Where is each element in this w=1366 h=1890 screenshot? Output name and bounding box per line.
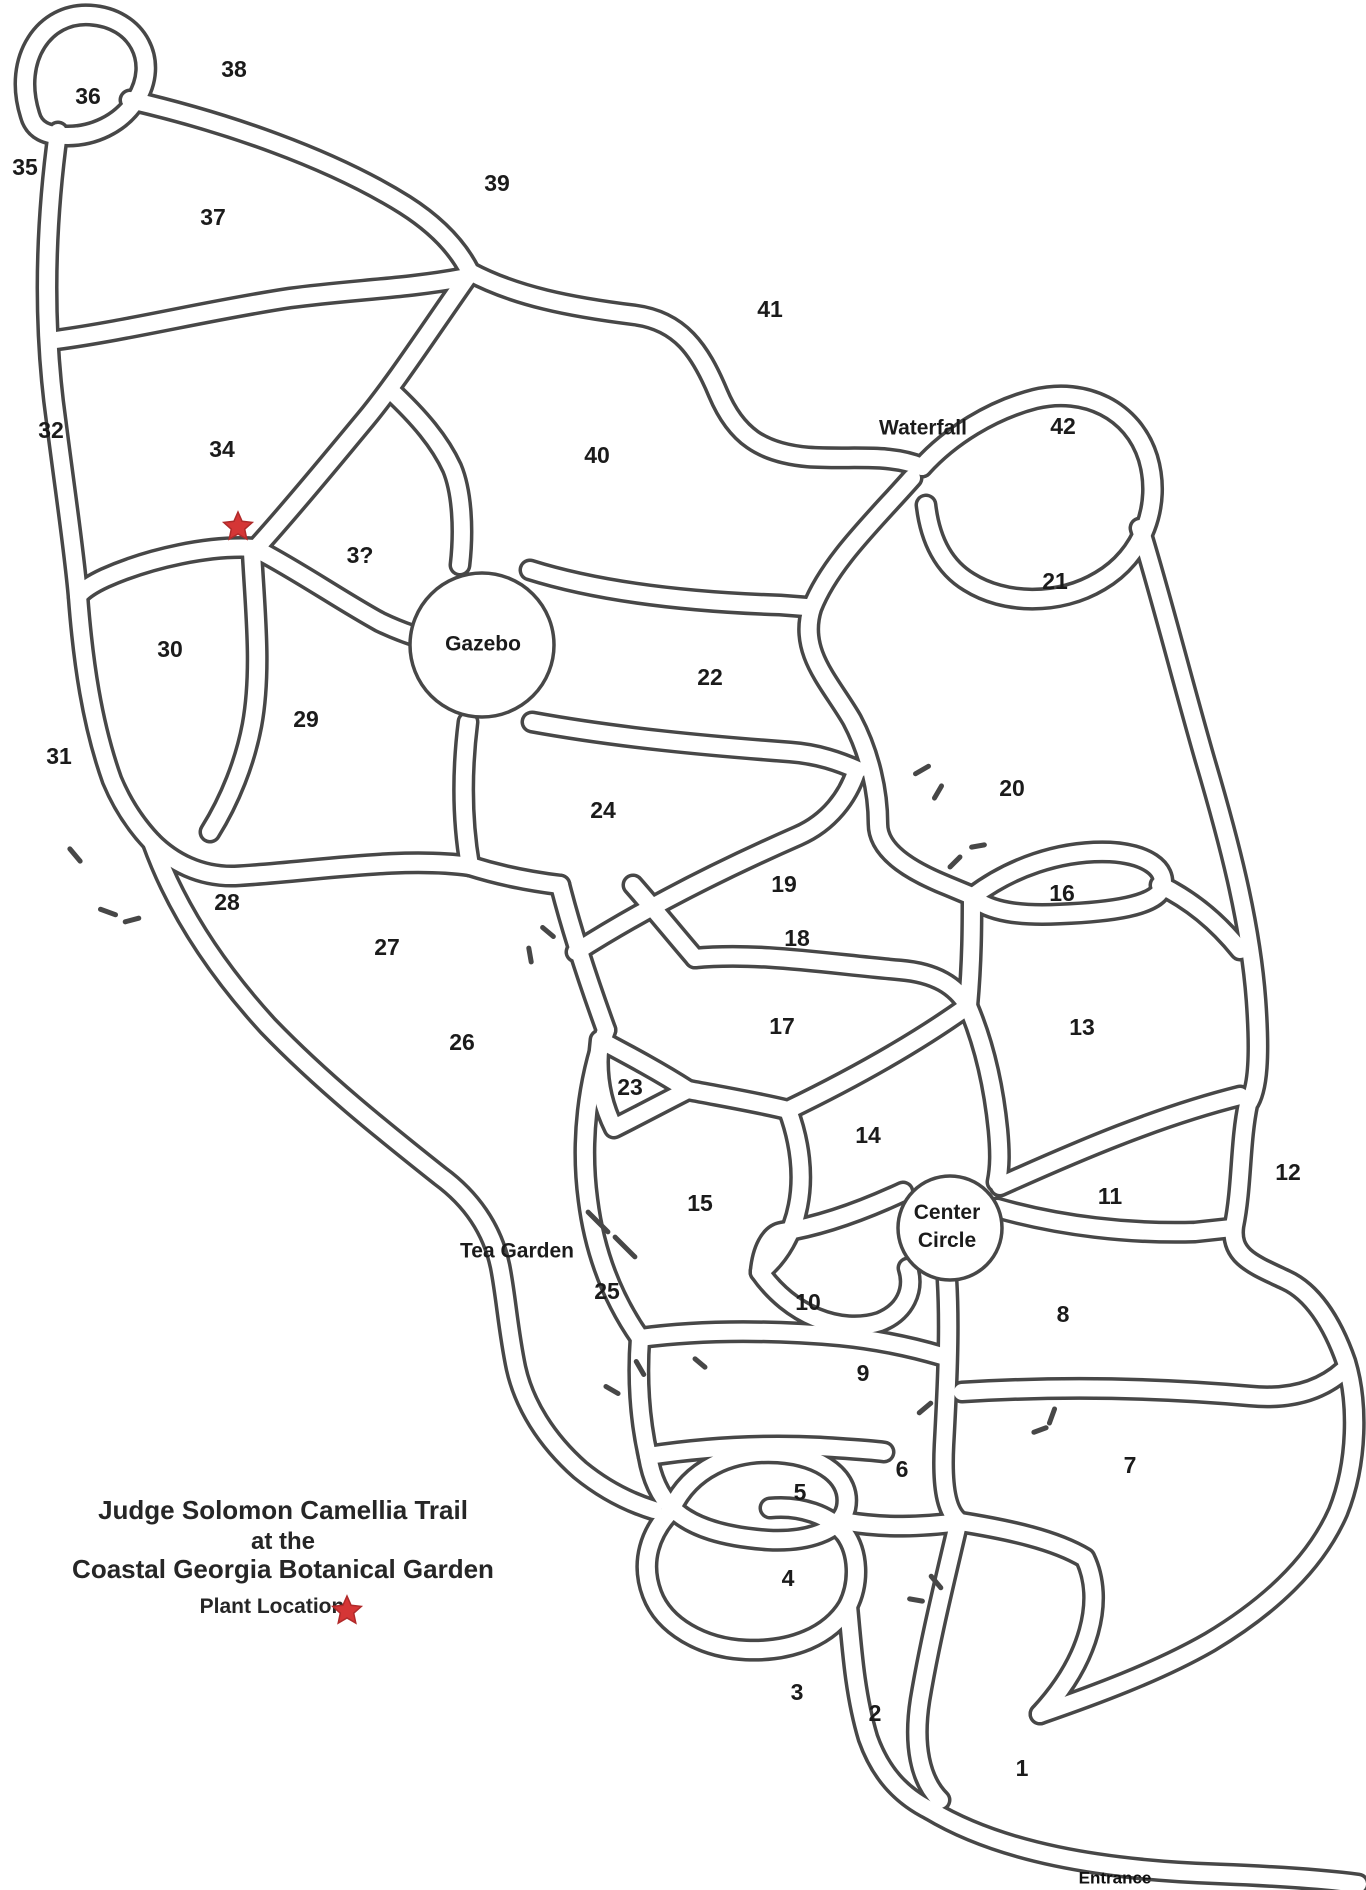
bed-label-36: 36 <box>75 83 101 109</box>
bed-label-12: 12 <box>1275 1159 1301 1185</box>
bed-label-21: 21 <box>1042 568 1068 594</box>
bed-label-39: 39 <box>484 170 510 196</box>
bed-label-30: 30 <box>157 636 183 662</box>
bed-label-20: 20 <box>999 775 1025 801</box>
trail-step-mark <box>615 1237 635 1257</box>
bed-label-24: 24 <box>590 797 616 823</box>
bed-label-23: 23 <box>617 1074 643 1100</box>
bed-label-34: 34 <box>209 436 235 462</box>
label-waterfall: Waterfall <box>879 417 967 440</box>
bed-label-35: 35 <box>12 154 38 180</box>
bed-label-25: 25 <box>594 1278 620 1304</box>
trail-path-surface <box>672 1453 847 1541</box>
label-gazebo: Gazebo <box>445 633 521 656</box>
bed-label-7: 7 <box>1124 1452 1137 1478</box>
trail-path-surface <box>848 1522 960 1526</box>
bed-label-18: 18 <box>784 925 810 951</box>
bed-label-11: 11 <box>1098 1183 1123 1209</box>
trail-step-mark <box>935 786 942 798</box>
bed-label-22: 22 <box>697 664 723 690</box>
map-title-line-2: at the <box>251 1528 315 1555</box>
trail-step-mark <box>916 766 929 774</box>
bed-label-8: 8 <box>1057 1301 1070 1327</box>
trail-path-surface <box>130 100 470 272</box>
trail-map-svg: 1234567891011121314151617181920212223242… <box>0 0 1366 1890</box>
bed-label-40: 40 <box>584 442 610 468</box>
bed-label-16: 16 <box>1049 880 1075 906</box>
trail-step-mark <box>950 857 960 867</box>
trail-path-surface <box>56 278 462 340</box>
bed-label-15: 15 <box>687 1190 713 1216</box>
bed-label-14: 14 <box>855 1122 881 1148</box>
trail-path-surface <box>1000 1096 1240 1186</box>
bed-label-4: 4 <box>782 1565 795 1591</box>
legend-plant-location-label: Plant Location <box>200 1595 345 1618</box>
trail-step-mark <box>1049 1409 1054 1423</box>
bed-label-28: 28 <box>214 889 240 915</box>
bed-label-32: 32 <box>38 417 64 443</box>
bed-label-3: 3 <box>791 1679 804 1705</box>
bed-label-6: 6 <box>896 1456 909 1482</box>
bed-label-2: 2 <box>869 1700 882 1726</box>
bed-label-26: 26 <box>449 1029 475 1055</box>
trail-step-mark <box>910 1599 923 1601</box>
trail-path-surface <box>788 1006 968 1110</box>
camellia-trail-map: 1234567891011121314151617181920212223242… <box>0 0 1366 1890</box>
trail-step-mark <box>125 918 139 922</box>
trail-step-mark <box>543 928 554 937</box>
trail-path <box>130 100 470 272</box>
trail-path-surface <box>1160 885 1240 950</box>
map-title-line-1: Judge Solomon Camellia Trail <box>98 1495 468 1525</box>
trail-step-mark <box>606 1387 618 1394</box>
trail-step-mark <box>919 1403 930 1413</box>
bed-label-41: 41 <box>757 296 783 322</box>
trail-path-surface <box>688 1090 788 1110</box>
bed-label-19: 19 <box>771 871 797 897</box>
trail-path-surface <box>1040 528 1354 1714</box>
bed-label-1: 1 <box>1016 1755 1029 1781</box>
trail-path-surface <box>962 1370 1344 1397</box>
trail-step-mark <box>529 948 531 962</box>
trail-path-surface <box>760 1268 910 1326</box>
bed-label-9: 9 <box>857 1360 870 1386</box>
bed-label-10: 10 <box>795 1289 821 1315</box>
bed-label-5: 5 <box>794 1479 807 1505</box>
bed-label-37: 37 <box>200 204 226 230</box>
bed-label-27: 27 <box>374 934 400 960</box>
trail-step-mark <box>1034 1428 1046 1432</box>
bed-label-29: 29 <box>293 706 319 732</box>
plant-location-star <box>224 512 253 539</box>
trail-path-surface <box>258 276 468 546</box>
trail-path-surface <box>47 132 152 842</box>
trail-step-mark <box>100 909 115 914</box>
trail-path-surface <box>464 722 470 866</box>
trail-path-surface <box>968 897 972 1006</box>
trail-path-surface <box>210 552 257 832</box>
bed-label-13: 13 <box>1069 1014 1095 1040</box>
bed-label-17: 17 <box>769 1013 795 1039</box>
label-entrance: Entrance <box>1079 1869 1152 1888</box>
bed-label-42: 42 <box>1050 413 1076 439</box>
bed-label-31: 31 <box>46 743 72 769</box>
trail-step-mark <box>695 1359 705 1367</box>
title-block: Judge Solomon Camellia Trailat theCoasta… <box>72 1495 494 1623</box>
bed-label-3: 3? <box>347 542 374 568</box>
map-title-line-3: Coastal Georgia Botanical Garden <box>72 1554 494 1584</box>
bed-label-38: 38 <box>221 56 247 82</box>
trail-step-mark <box>70 849 80 861</box>
trail-step-mark <box>972 845 985 847</box>
label-tea-garden: Tea Garden <box>460 1240 574 1263</box>
